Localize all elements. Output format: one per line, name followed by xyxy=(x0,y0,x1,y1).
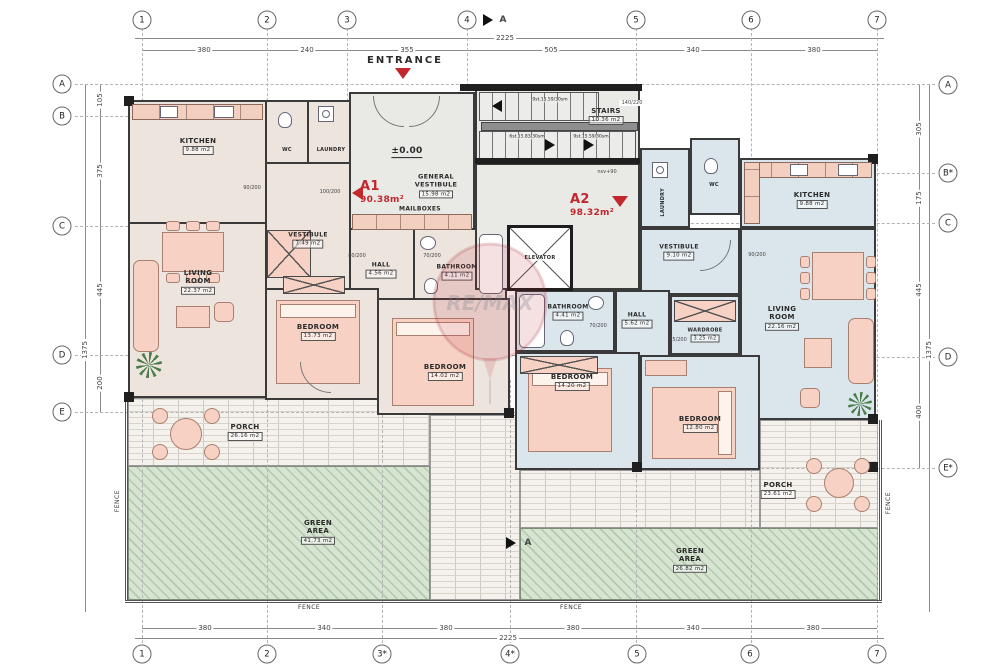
room-label-wardrobe-a2: WARDROBE 3.25 m2 xyxy=(688,328,723,343)
bathroom-a1-area: 4.11 m2 xyxy=(442,272,473,281)
stairs-flight-b-note: 9st.15.59/30sm xyxy=(573,135,608,140)
sink-a1 xyxy=(420,236,436,250)
stairs-area: 10.36 m2 xyxy=(589,116,624,125)
elevator-text: ELEVATOR xyxy=(524,255,557,261)
hall-a2-name: HALL xyxy=(628,312,647,319)
armchair-a1 xyxy=(214,302,234,322)
general-vestibule-area: 15.98 m2 xyxy=(419,190,454,199)
dim-line-top-seg xyxy=(142,50,877,51)
level-zero-label: ±0.00 xyxy=(391,146,422,158)
porch-left-name: PORCH xyxy=(231,423,260,431)
grid-bubble-bottom-1: 1 xyxy=(133,645,152,664)
wc-a2-name: WC xyxy=(709,182,719,188)
grid-line-3s xyxy=(382,380,383,648)
bed-bedroom2-a1 xyxy=(392,318,474,406)
room-label-bedroom2-a2: BEDROOM 12.80 m2 xyxy=(679,415,721,433)
porch-left-area-tag: 26.16 m2 xyxy=(228,432,263,441)
mailboxes-text: MAILBOXES xyxy=(397,205,443,212)
wardrobe-a2-name: WARDROBE xyxy=(688,328,723,334)
fence-label-right: FENCE xyxy=(885,492,892,514)
kitchen-a1-name: KITCHEN xyxy=(180,137,217,145)
door-tag-4: 70/200 xyxy=(587,323,609,329)
stairs-flight-a-note: 6st.15.83/30sm xyxy=(509,135,544,140)
fence-bottom xyxy=(125,600,882,603)
porch-chair-right-1 xyxy=(806,458,822,474)
porch-chair-left-3 xyxy=(152,444,168,460)
section-marker-bottom-label: A xyxy=(523,538,534,548)
dining-chair-a2-5 xyxy=(866,272,876,284)
bedroom2-a1-area: 14.02 m2 xyxy=(428,372,463,381)
grid-bubble-left-C: C xyxy=(53,217,72,236)
grid-bubble-right-A: A xyxy=(939,76,958,95)
kitchen-a1-area: 9.88 m2 xyxy=(183,146,214,155)
laundry-a1-name: LAUNDRY xyxy=(317,147,346,153)
dining-chair-a2-2 xyxy=(800,272,810,284)
wc-a1-name: WC xyxy=(282,147,292,153)
porch-chair-left-1 xyxy=(152,408,168,424)
porch-chair-right-3 xyxy=(806,496,822,512)
plant-a1-icon xyxy=(136,352,162,378)
green-left-name: GREEN AREA xyxy=(298,519,338,536)
room-label-hall-a1: HALL 4.56 m2 xyxy=(366,262,397,279)
stairs-top-wall xyxy=(460,84,642,91)
grid-bubble-bottom-4s: 4* xyxy=(501,645,520,664)
grid-line-7 xyxy=(877,28,878,648)
dining-chair-a1-1 xyxy=(166,221,180,231)
room-label-wc-a1: WC xyxy=(282,147,292,153)
room-label-living-a2: LIVING ROOM 22.16 m2 xyxy=(759,305,805,331)
wall-column-2 xyxy=(124,392,134,402)
label-porch-right: PORCH 23.61 m2 xyxy=(761,481,796,499)
room-label-vestibule-a2: VESTIBULE 9.10 m2 xyxy=(659,244,698,261)
grid-bubble-right-D: D xyxy=(939,348,958,367)
coffee-table-a1 xyxy=(176,306,210,328)
bathroom-a2-area: 4.41 m2 xyxy=(553,312,584,321)
dim-bot-4: 340 xyxy=(684,624,701,632)
label-green-right: GREEN AREA 26.82 m2 xyxy=(670,547,710,573)
section-marker-bottom-icon xyxy=(506,537,516,549)
wall-column-4 xyxy=(504,408,514,418)
door-tag-2: 80/200 xyxy=(346,253,368,259)
stairs-flight-up-note: 9st.15.59/30sm xyxy=(532,98,567,103)
dining-chair-a2-6 xyxy=(866,288,876,300)
bathroom-a1-name: BATHROOM xyxy=(436,264,477,271)
dim-top-0: 380 xyxy=(195,46,212,54)
kitchen-a2-name: KITCHEN xyxy=(794,191,831,199)
room-label-stairs: STAIRS 10.36 m2 xyxy=(589,107,624,125)
unit-a1-arrow-icon xyxy=(352,186,363,200)
entrance-arrow-icon xyxy=(395,68,411,79)
grid-bubble-left-B: B xyxy=(53,107,72,126)
room-label-bedroom2-a1: BEDROOM 14.02 m2 xyxy=(424,363,466,381)
vestibule-a2-name: VESTIBULE xyxy=(659,244,698,251)
wall-column-8 xyxy=(632,462,642,472)
grid-bubble-top-3: 3 xyxy=(338,11,357,30)
door-tag-5: 75/200 xyxy=(667,337,689,343)
porch-chair-right-2 xyxy=(854,458,870,474)
stairs-name: STAIRS xyxy=(591,107,621,115)
bedroom1-a2-area: 14.20 m2 xyxy=(555,382,590,391)
dim-top-2: 355 xyxy=(398,46,415,54)
porch-chair-left-2 xyxy=(204,408,220,424)
bedroom1-a1-area: 13.73 m2 xyxy=(301,332,336,341)
plant-a2-icon xyxy=(848,392,872,416)
room-label-kitchen-a2: KITCHEN 9.88 m2 xyxy=(794,191,831,209)
room-label-bathroom-a1: BATHROOM 4.11 m2 xyxy=(436,264,477,281)
grid-bubble-bottom-6: 6 xyxy=(741,645,760,664)
kitchen-a2-area: 9.88 m2 xyxy=(797,200,828,209)
vestibule-a1-area: 7.49 m2 xyxy=(293,240,324,249)
washer-a1 xyxy=(318,106,334,122)
porch-right-area-lower xyxy=(520,470,760,528)
wall-column-6 xyxy=(868,414,878,424)
vestibule-a2-area: 9.10 m2 xyxy=(664,252,695,261)
dim-left-0: 105 xyxy=(96,91,104,108)
stairs-bottom-wall xyxy=(475,158,640,164)
grid-bubble-bottom-5: 5 xyxy=(628,645,647,664)
fence-left xyxy=(125,398,128,600)
grid-bubble-bottom-2: 2 xyxy=(258,645,277,664)
bedroom2-a2-area: 12.80 m2 xyxy=(683,424,718,433)
dim-top-4: 340 xyxy=(684,46,701,54)
green-right-area-tag: 26.82 m2 xyxy=(673,565,708,574)
bathtub-a2 xyxy=(519,294,545,348)
dining-table-a2 xyxy=(812,252,864,300)
room-wc-a2 xyxy=(690,138,740,215)
grid-bubble-top-7: 7 xyxy=(868,11,887,30)
dim-left-1: 375 xyxy=(96,162,104,179)
door-tag-3: 70/200 xyxy=(421,253,443,259)
dim-line-left-seg xyxy=(100,84,101,412)
core-level-note: nsv+90 xyxy=(595,169,618,175)
sofa-a2 xyxy=(848,318,874,384)
room-label-laundry-a2: LAUNDRY xyxy=(660,188,666,217)
green-left-area-tag: 41.73 m2 xyxy=(301,537,336,546)
bathroom-a2-name: BATHROOM xyxy=(547,304,588,311)
dining-chair-a1-3 xyxy=(206,221,220,231)
entrance-text: ENTRANCE xyxy=(367,55,443,67)
bedroom2-a1-name: BEDROOM xyxy=(424,363,466,371)
porch-table-right xyxy=(824,468,854,498)
green-area-left xyxy=(128,466,430,600)
room-label-bedroom1-a2: BEDROOM 14.20 m2 xyxy=(551,373,593,391)
dim-bot-0: 380 xyxy=(196,624,213,632)
room-wc-a1 xyxy=(265,100,309,164)
hall-a2-area: 5.62 m2 xyxy=(622,320,653,329)
fence-label-bottom-left: FENCE xyxy=(298,604,320,611)
kitchen-stove-a1 xyxy=(214,106,234,118)
section-marker-top-icon xyxy=(483,14,493,26)
vestibule-a1-name: VESTIBULE xyxy=(288,232,327,239)
desk-bedroom2-a2 xyxy=(645,360,687,376)
stairs-arrow-up-icon xyxy=(492,100,502,112)
kitchen-stove-a2 xyxy=(838,164,858,176)
dining-table-a1 xyxy=(162,232,224,272)
dim-top-3: 505 xyxy=(542,46,559,54)
dining-chair-a2-1 xyxy=(800,256,810,268)
grid-bubble-bottom-7: 7 xyxy=(868,645,887,664)
toilet-wc-a2 xyxy=(704,158,718,174)
dim-bot-3: 380 xyxy=(564,624,581,632)
dim-left-total: 1375 xyxy=(81,339,89,361)
kitchen-sink-a1 xyxy=(160,106,178,118)
dim-right-1: 175 xyxy=(915,189,923,206)
floor-plan-canvas: 380 240 355 505 340 380 2225 380 340 380… xyxy=(0,0,1000,667)
coffee-table-a2 xyxy=(804,338,832,368)
laundry-a2-name: LAUNDRY xyxy=(660,188,666,217)
bedroom2-a2-name: BEDROOM xyxy=(679,415,721,423)
hall-a1-area: 4.56 m2 xyxy=(366,270,397,279)
wardrobe-box-a2-1 xyxy=(520,356,598,374)
dim-right-2: 445 xyxy=(915,281,923,298)
mailboxes-row xyxy=(352,214,472,230)
dim-right-0: 305 xyxy=(915,120,923,137)
room-label-living-a1: LIVING ROOM 22.37 m2 xyxy=(173,269,223,295)
wardrobe-a2-area: 3.25 m2 xyxy=(691,335,720,343)
label-porch-left: PORCH 26.16 m2 xyxy=(228,423,263,441)
fence-label-bottom-right: FENCE xyxy=(560,604,582,611)
unit-a1-label: A1 90.38m² xyxy=(360,179,404,205)
washer-a2 xyxy=(652,162,668,178)
kitchen-sink-a2 xyxy=(790,164,808,176)
toilet-a2 xyxy=(560,330,574,346)
elevator-label: ELEVATOR xyxy=(524,255,557,261)
dim-bot-1: 340 xyxy=(315,624,332,632)
grid-bubble-left-D: D xyxy=(53,346,72,365)
wardrobe-box-a2-2 xyxy=(674,300,736,322)
dim-bot-5: 380 xyxy=(804,624,821,632)
general-vestibule-name: GENERAL VESTIBULE xyxy=(405,173,467,189)
dining-chair-a2-4 xyxy=(866,256,876,268)
grid-bubble-left-E: E xyxy=(53,403,72,422)
room-label-bathroom-a2: BATHROOM 4.41 m2 xyxy=(547,304,588,321)
bathtub-a1 xyxy=(479,234,503,294)
room-label-general-vestibule: GENERAL VESTIBULE 15.98 m2 xyxy=(405,173,467,198)
stairs-flight-lower xyxy=(479,131,636,161)
entrance-label: ENTRANCE xyxy=(367,55,443,67)
armchair-a2 xyxy=(800,388,820,408)
unit-a2-area: 98.32m² xyxy=(570,207,614,218)
stairs-arrow-b-icon xyxy=(584,139,594,151)
grid-bubble-right-Es: E* xyxy=(939,459,958,478)
bedroom1-a2-name: BEDROOM xyxy=(551,373,593,381)
unit-a1-id: A1 xyxy=(360,179,380,195)
dining-chair-a1-2 xyxy=(186,221,200,231)
room-vestibule-a2 xyxy=(640,228,740,295)
grid-bubble-top-4: 4 xyxy=(458,11,477,30)
unit-a2-label: A2 98.32m² xyxy=(570,192,614,218)
dim-bot-total: 2225 xyxy=(497,634,519,642)
stairs-opening-dim: 140/220 xyxy=(620,100,645,106)
room-label-kitchen-a1: KITCHEN 9.88 m2 xyxy=(180,137,217,155)
unit-a2-id: A2 xyxy=(570,192,590,208)
porch-right-area-tag: 23.61 m2 xyxy=(761,490,796,499)
fence-right xyxy=(879,420,882,600)
porch-chair-left-4 xyxy=(204,444,220,460)
living-a2-name: LIVING ROOM xyxy=(759,305,805,322)
grid-line-4s xyxy=(510,380,511,648)
grid-bubble-top-6: 6 xyxy=(742,11,761,30)
room-label-wc-a2: WC xyxy=(709,182,719,188)
grid-bubble-bottom-3s: 3* xyxy=(373,645,392,664)
mailboxes-label: MAILBOXES xyxy=(397,205,443,212)
grid-bubble-left-A: A xyxy=(53,75,72,94)
toilet-wc-a1 xyxy=(278,112,292,128)
green-right-name: GREEN AREA xyxy=(670,547,710,564)
grid-bubble-right-C: C xyxy=(939,214,958,233)
wardrobe-box-a1-2 xyxy=(283,276,345,294)
dim-left-3: 200 xyxy=(96,374,104,391)
living-a1-name: LIVING ROOM xyxy=(173,269,223,286)
living-a1-area: 22.37 m2 xyxy=(181,287,216,296)
grid-bubble-top-1: 1 xyxy=(133,11,152,30)
porch-table-left xyxy=(170,418,202,450)
toilet-a1 xyxy=(424,278,438,294)
dim-right-total: 1375 xyxy=(925,339,933,361)
level-zero-text: ±0.00 xyxy=(391,146,422,158)
section-marker-top-label: A xyxy=(498,15,509,25)
dim-top-1: 240 xyxy=(298,46,315,54)
porch-right-name: PORCH xyxy=(764,481,793,489)
kitchen-counter-a2-side xyxy=(744,162,760,224)
walkway-center xyxy=(430,415,520,600)
grid-bubble-top-2: 2 xyxy=(258,11,277,30)
door-tag-0: 90/200 xyxy=(241,185,263,191)
dim-top-5: 380 xyxy=(805,46,822,54)
kitchen-counter-a1 xyxy=(132,104,263,120)
sofa-a1 xyxy=(133,260,159,352)
unit-a2-arrow-icon xyxy=(612,196,628,207)
grid-bubble-top-5: 5 xyxy=(627,11,646,30)
dim-right-3: 400 xyxy=(915,403,923,420)
grid-bubble-right-Bs: B* xyxy=(939,164,958,183)
label-green-left: GREEN AREA 41.73 m2 xyxy=(298,519,338,545)
dining-chair-a2-3 xyxy=(800,288,810,300)
living-a2-area: 22.16 m2 xyxy=(765,323,800,332)
unit-a1-area: 90.38m² xyxy=(360,194,404,205)
porch-chair-right-4 xyxy=(854,496,870,512)
fence-label-left: FENCE xyxy=(114,490,121,512)
room-label-laundry-a1: LAUNDRY xyxy=(317,147,346,153)
room-label-bedroom1-a1: BEDROOM 13.73 m2 xyxy=(297,323,339,341)
bedroom1-a1-name: BEDROOM xyxy=(297,323,339,331)
door-tag-1: 100/200 xyxy=(318,189,343,195)
dim-top-total: 2225 xyxy=(494,34,516,42)
dim-bot-2: 380 xyxy=(437,624,454,632)
stairs-arrow-a-icon xyxy=(545,139,555,151)
room-label-vestibule-a1: VESTIBULE 7.49 m2 xyxy=(288,232,327,249)
room-label-hall-a2: HALL 5.62 m2 xyxy=(622,312,653,329)
sink-a2 xyxy=(588,296,604,310)
door-tag-6: 90/200 xyxy=(746,252,768,258)
hall-a1-name: HALL xyxy=(372,262,391,269)
dim-left-2: 445 xyxy=(96,281,104,298)
